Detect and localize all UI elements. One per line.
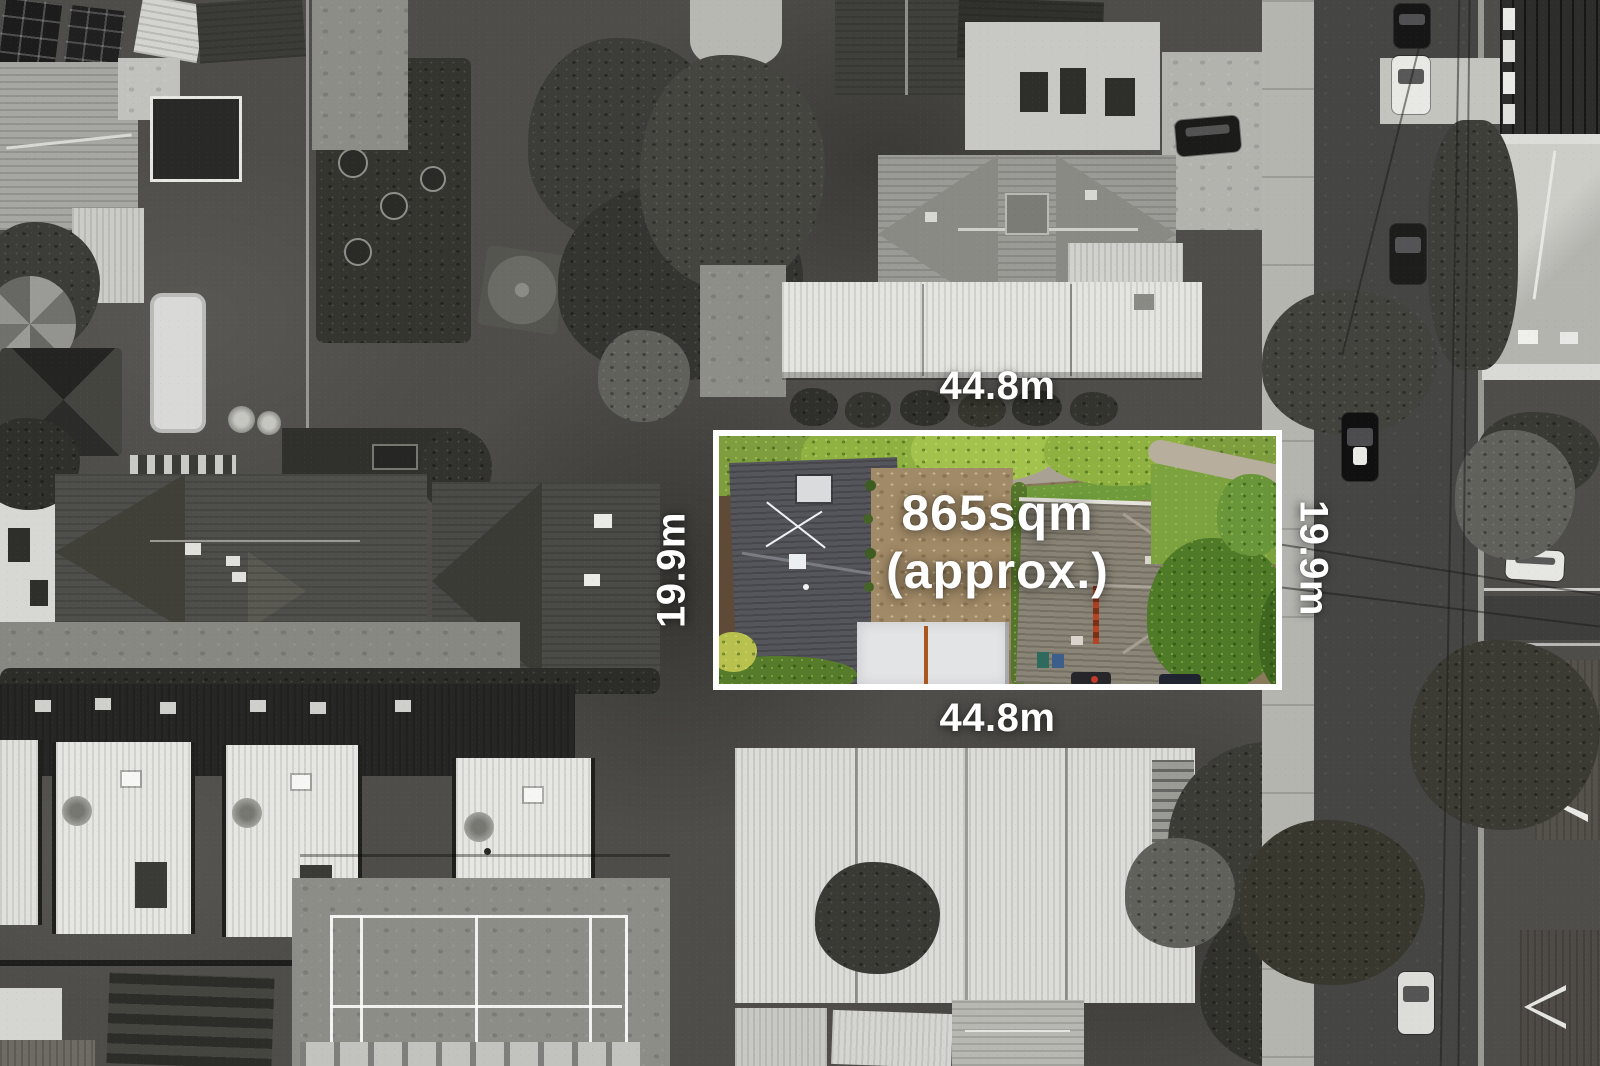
area-label-line1: 865sqm: [719, 484, 1276, 542]
area-label-line2: (approx.): [719, 542, 1276, 600]
red-marker-dot: [1091, 676, 1098, 683]
dimension-label-right: 19.9m: [1291, 500, 1336, 616]
wheelie-bin: [1037, 652, 1049, 668]
slab-orange-line: [924, 626, 928, 686]
property-boundary-box: 865sqm (approx.): [713, 430, 1282, 690]
roof-vent: [1071, 636, 1083, 645]
dimension-label-bottom: 44.8m: [713, 696, 1282, 741]
slab-edge-shadow: [1005, 622, 1009, 686]
area-label: 865sqm (approx.): [719, 484, 1276, 600]
concrete-slab: [857, 622, 1009, 686]
dimension-label-left: 19.9m: [650, 512, 695, 628]
parked-car-dark: [1159, 674, 1201, 688]
dimension-label-top: 44.8m: [713, 364, 1282, 409]
wheelie-bin: [1052, 654, 1064, 668]
aerial-photo: 865sqm (approx.) 44.8m 44.8m 19.9m 19.9m: [0, 0, 1600, 1066]
